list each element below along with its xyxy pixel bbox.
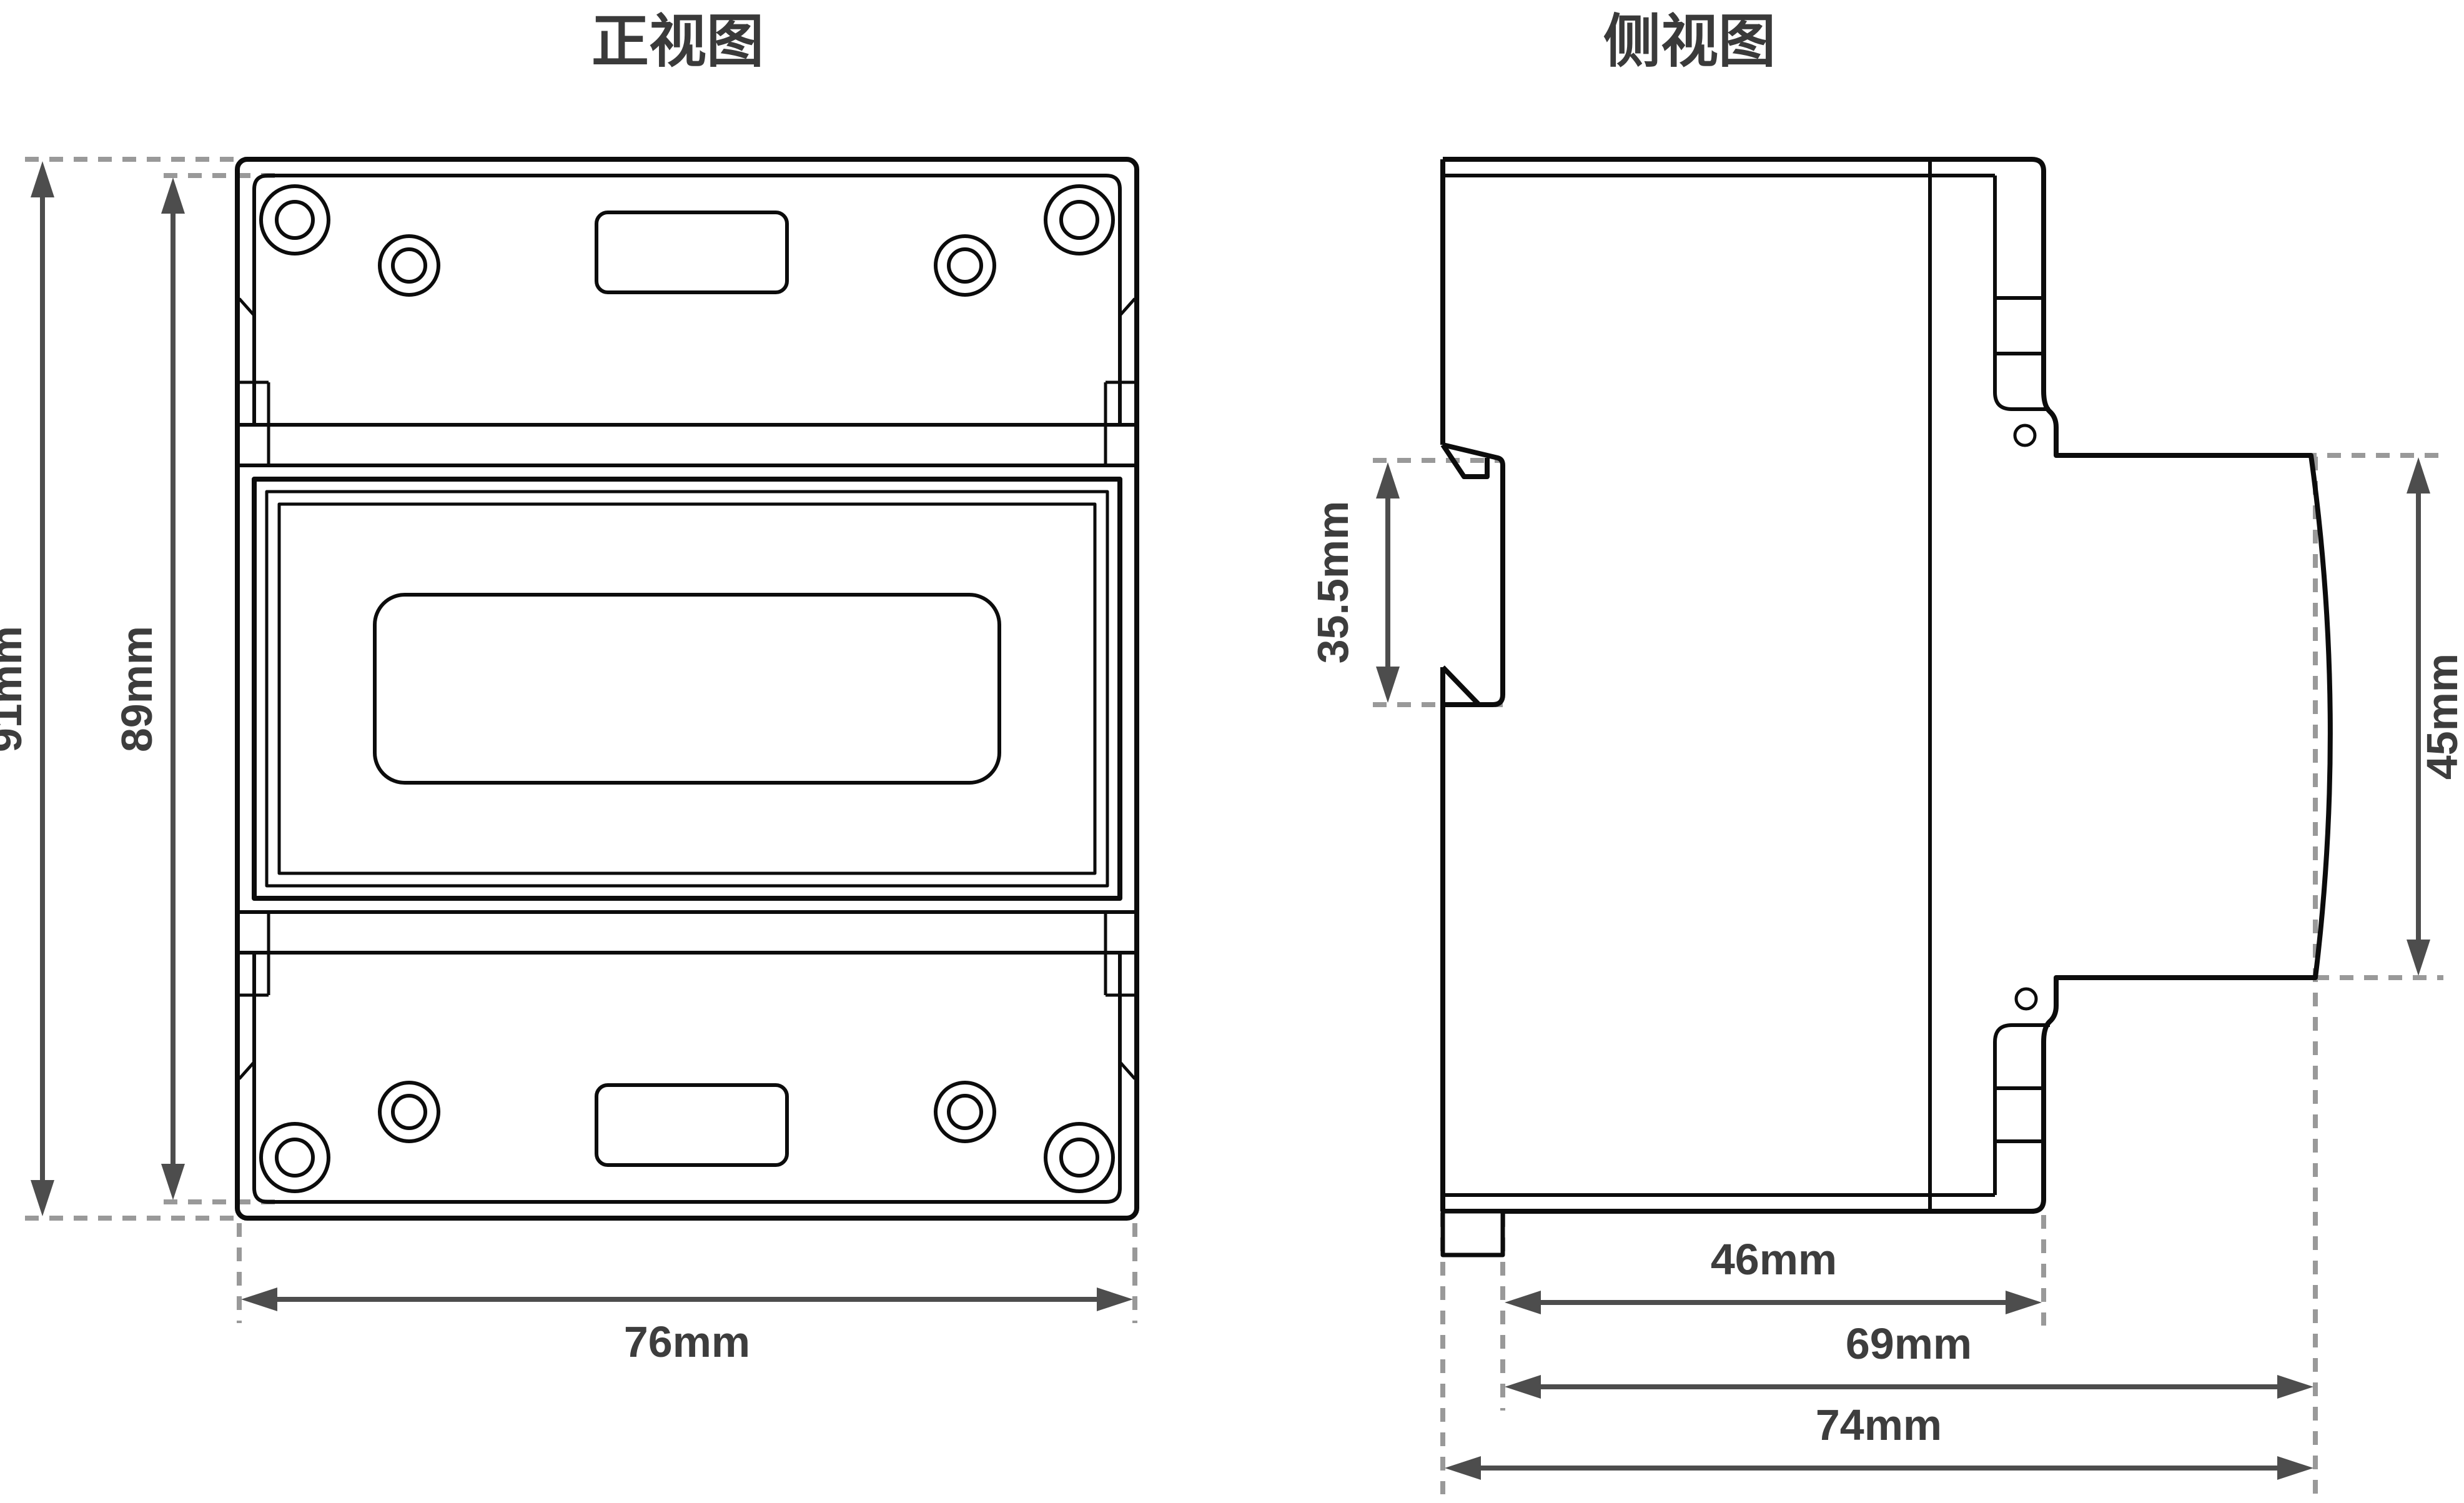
rail-slot (1443, 445, 1503, 705)
arrowhead-up (31, 161, 54, 197)
bottom-right-wall-chamfer (1120, 1062, 1135, 1079)
arrowhead-up (1376, 462, 1400, 499)
terminal-screw (261, 1124, 329, 1191)
side-outer-profile (1443, 159, 2330, 1211)
arrowhead-left (241, 1287, 277, 1311)
dimension-label: 89mm (112, 626, 161, 752)
display-bezel-mid (267, 492, 1107, 886)
front-view: 正视图 (0, 10, 1137, 1366)
front-display-section (254, 479, 1120, 898)
dimension-rail-slot-35-5mm: 35.5mm (1309, 462, 1400, 703)
dimension-label: 91mm (0, 626, 31, 752)
arrowhead-down (31, 1180, 54, 1216)
top-fixing-hole (2015, 425, 2035, 445)
dimension-overall-height-91mm: 91mm (0, 161, 54, 1216)
top-bottom-face-bands (1444, 176, 1995, 1195)
meter-side-body (1443, 159, 2330, 1255)
dimension-label: 69mm (1846, 1319, 1972, 1368)
arrowhead-down (1376, 667, 1400, 703)
front-bottom-terminal-section (239, 912, 1135, 1202)
dimension-label: 74mm (1816, 1401, 1942, 1449)
bottom-fixing-hole (2016, 989, 2036, 1009)
arrowhead-down (2407, 940, 2430, 976)
terminal-screw (380, 236, 438, 295)
arrowhead-left (1505, 1375, 1541, 1399)
dimension-front-depth-69mm: 69mm (1505, 1319, 2313, 1399)
bottom-strip-segments (1995, 1088, 2044, 1141)
dimension-label: 45mm (2418, 653, 2464, 780)
arrowhead-right (2277, 1375, 2313, 1399)
dimension-label: 76mm (624, 1317, 750, 1366)
side-view-title: 侧视图 (1603, 10, 1776, 74)
side-view: 侧视图 (1309, 10, 2464, 1494)
display-bezel-inner (279, 504, 1095, 873)
terminal-screw (261, 186, 329, 254)
dimension-front-face-45mm: 45mm (2407, 457, 2464, 976)
rail-clip-foot (1443, 1211, 1503, 1255)
technical-drawing-page: 正视图 (0, 0, 2464, 1503)
top-strip-segments (1995, 298, 2044, 354)
arrowhead-up (2407, 457, 2430, 494)
dimension-body-depth-46mm: 46mm (1505, 1235, 2042, 1314)
front-extension-lines (25, 159, 1135, 1323)
meter-front-body (237, 159, 1137, 1218)
dimension-overall-depth-74mm: 74mm (1445, 1401, 2313, 1480)
dimension-label: 46mm (1711, 1235, 1837, 1284)
display-bezel-outer (254, 479, 1120, 898)
dimension-cover-height-89mm: 89mm (112, 177, 185, 1200)
terminal-screw (936, 236, 994, 295)
terminal-screw (936, 1083, 994, 1141)
dimension-label: 35.5mm (1309, 501, 1357, 664)
arrowhead-down (161, 1164, 185, 1200)
terminal-screw (380, 1083, 438, 1141)
arrowhead-left (1445, 1456, 1481, 1480)
meter-dimension-drawing: 正视图 (0, 0, 2464, 1503)
arrowhead-up (161, 177, 185, 214)
front-view-title: 正视图 (591, 10, 764, 74)
bottom-left-wall-chamfer (239, 1062, 254, 1079)
arrowhead-left (1505, 1291, 1541, 1314)
bottom-label-slot (596, 1085, 787, 1165)
arrowhead-right (2277, 1456, 2313, 1480)
rail-spring-clip (1443, 667, 1479, 705)
front-top-terminal-section (239, 176, 1135, 465)
arrowhead-right (1097, 1287, 1133, 1311)
arrowhead-right (2006, 1291, 2042, 1314)
lcd-window (375, 595, 999, 783)
top-left-wall-chamfer (239, 299, 254, 315)
dimension-overall-width-76mm: 76mm (241, 1287, 1133, 1366)
top-label-slot (596, 212, 787, 292)
din-rail-clip (1443, 445, 1503, 1255)
front-outer-case (237, 159, 1137, 1218)
terminal-screw (1046, 186, 1113, 254)
top-right-wall-chamfer (1120, 299, 1135, 315)
terminal-screw (1046, 1124, 1113, 1191)
